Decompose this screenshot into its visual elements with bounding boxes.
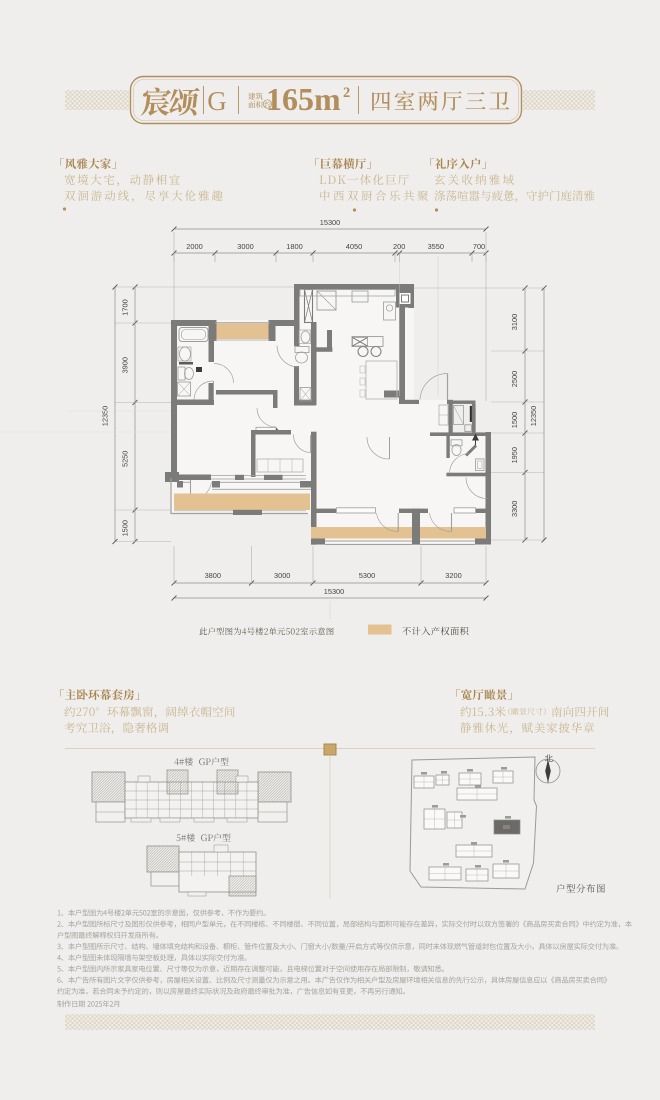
svg-text:12350: 12350 xyxy=(101,406,110,427)
svg-text:3000: 3000 xyxy=(274,571,290,580)
svg-text:5250: 5250 xyxy=(121,451,130,467)
svg-text:1500: 1500 xyxy=(121,520,130,536)
svg-text:3000: 3000 xyxy=(237,242,253,251)
svg-text:3100: 3100 xyxy=(510,314,519,330)
svg-text:1950: 1950 xyxy=(510,447,519,463)
svg-text:3200: 3200 xyxy=(445,571,461,580)
svg-text:12350: 12350 xyxy=(529,406,538,427)
svg-text:3300: 3300 xyxy=(510,501,519,517)
svg-text:2500: 2500 xyxy=(510,371,519,387)
svg-text:G: G xyxy=(207,86,227,116)
svg-text:1500: 1500 xyxy=(510,412,519,428)
svg-text:700: 700 xyxy=(473,242,485,251)
svg-text:2: 2 xyxy=(343,85,350,101)
svg-text:5300: 5300 xyxy=(359,571,375,580)
svg-text:15300: 15300 xyxy=(324,587,345,596)
svg-text:165m: 165m xyxy=(266,81,341,117)
svg-text:1800: 1800 xyxy=(286,242,302,251)
svg-text:2000: 2000 xyxy=(186,242,202,251)
svg-text:200: 200 xyxy=(393,242,405,251)
svg-text:1700: 1700 xyxy=(121,299,130,315)
svg-text:3550: 3550 xyxy=(428,242,444,251)
svg-text:3900: 3900 xyxy=(121,357,130,373)
svg-text:4050: 4050 xyxy=(346,242,362,251)
svg-text:15300: 15300 xyxy=(320,218,341,227)
svg-text:3800: 3800 xyxy=(205,571,221,580)
